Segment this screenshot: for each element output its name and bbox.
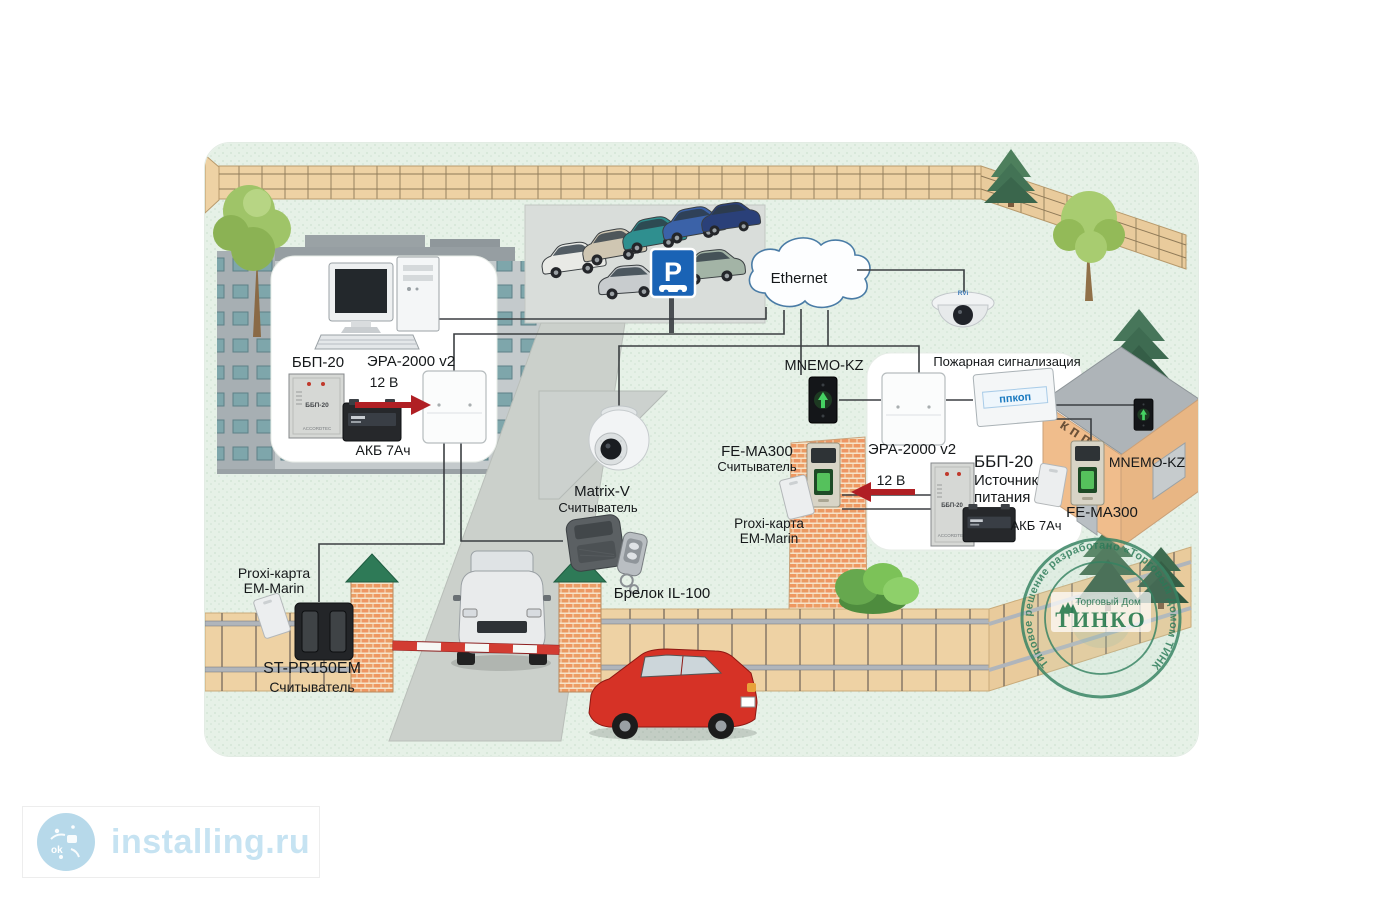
parking-sign-letter: P [664,257,682,287]
bbp20-psu-left: ББП-20 ACCORDTEC [289,374,344,438]
label-kpp-fe-ma300: FE-MA300 [1022,505,1182,522]
label-fe-reader-left: Считыватель [677,460,837,475]
label-era2000-right: ЭРА-2000 v2 [832,442,992,459]
gate-pillar-right [554,554,606,692]
installing-logo-icon: ok [37,813,95,871]
watermark[interactable]: ok installing.ru [22,806,320,878]
bbp-face-text: ББП-20 [305,402,329,409]
era2000-left-device [423,371,486,443]
bbp-brand-text: ACCORDTEC [303,426,332,431]
label-matrix-v: Matrix-V [522,484,682,501]
label-proxi-right-2: EM-Marin [689,531,849,546]
st-pr150em-reader [295,603,353,660]
label-proxi-right-1: Proxi-карта [689,516,849,531]
label-12v-left: 12 В [354,375,414,391]
era2000-right-device [882,373,945,445]
fire-panel-ppkop: ппкоп [973,368,1057,427]
label-akb-left: АКБ 7Ач [303,443,463,459]
security-scheme-diagram: P [204,142,1199,757]
matrix-v-reader [565,513,626,572]
label-ethernet: Ethernet [719,271,879,288]
logo-ok-text: ok [51,845,63,856]
label-kpp-mnemo: MNEMO-KZ [1067,455,1199,471]
stamp-brand-text: ТИНКО [1055,607,1146,632]
label-12v-right: 12 В [861,473,921,489]
label-st-reader: Считыватель [232,680,392,696]
label-proxi-left-2: EM-Marin [204,581,354,597]
mnemo-device-kpp [1134,399,1153,430]
label-fire-alarm: Пожарная сигнализация [907,355,1107,370]
mnemo-device-left [809,377,837,423]
label-keyfob: Брелок IL-100 [582,586,742,603]
label-matrix-reader: Считыватель [518,501,678,516]
label-mnemo-top: MNEMO-KZ [744,358,904,374]
watermark-site[interactable]: installing.ru [111,823,310,862]
label-st-pr150em: ST-PR150EM [232,660,392,678]
label-psu-line1: Источник [974,473,1084,490]
label-era2000-left: ЭРА-2000 v2 [331,354,491,371]
camera-brand: RVi [958,290,969,297]
page: P [0,0,1400,900]
bbp-face-text: ББП-20 [941,503,963,509]
